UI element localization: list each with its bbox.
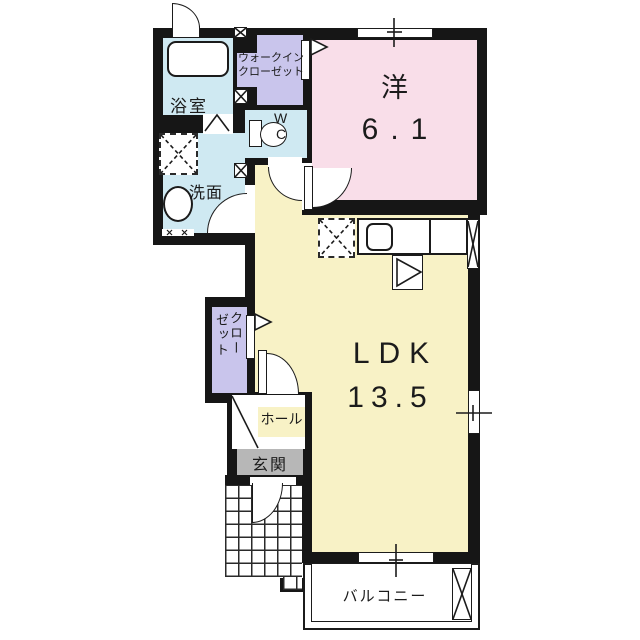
balcony-hatch-box <box>452 568 472 620</box>
ldk-size: 13.5 <box>312 381 462 415</box>
wc-label-c: C <box>276 126 286 142</box>
western-room-size: 6.1 <box>312 113 477 147</box>
hall-threshold-top <box>258 395 305 407</box>
bedroom-top-window <box>357 28 433 38</box>
balcony-label: バルコニー <box>330 585 440 606</box>
entrance-label: 玄関 <box>237 451 303 475</box>
western-room-label: 洋 <box>312 66 477 105</box>
entrance-porch-step <box>283 577 302 590</box>
refrigerator-space-icon <box>318 218 355 258</box>
wc-door-gap <box>268 157 302 167</box>
kitchen-sink-icon <box>366 223 393 251</box>
closet-label-col-left: ゼット <box>212 313 231 358</box>
vent-box-1-icon <box>234 89 248 104</box>
washing-machine-space-icon <box>159 133 198 175</box>
hall-door-leaf <box>258 350 267 394</box>
bathroom-top-door-arc <box>172 3 200 28</box>
closet-door-leaf <box>246 315 255 359</box>
pipe-space-icon <box>467 219 479 269</box>
wic-label-line2: クローゼット <box>238 63 304 79</box>
bathtub-icon <box>167 41 229 77</box>
hall-label: ホール <box>258 409 305 429</box>
washroom-vent-strip <box>162 229 194 236</box>
room-ldk-lower <box>312 392 468 552</box>
bathroom-folding-door <box>203 114 233 134</box>
vent-box-top-icon <box>234 27 247 38</box>
floorplan: 浴室 ウォークイン クローゼット W C 洗面 洋 6.1 LDK 13.5 ク… <box>0 0 640 640</box>
hall-threshold-bottom <box>258 437 305 449</box>
shoe-cabinet <box>232 395 258 449</box>
ldk-balcony-window <box>358 552 434 563</box>
ldk-label: LDK <box>316 337 466 371</box>
kitchen-stove-box <box>392 255 423 290</box>
wc-label-w: W <box>274 110 287 126</box>
ldk-right-window <box>468 390 480 434</box>
bedroom-door-leaf <box>304 166 313 210</box>
washroom-label: 洗面 <box>189 179 223 203</box>
vent-box-2-icon <box>234 163 248 178</box>
kitchen-counter-divider <box>429 218 431 255</box>
bathroom-label: 浴室 <box>170 92 208 117</box>
